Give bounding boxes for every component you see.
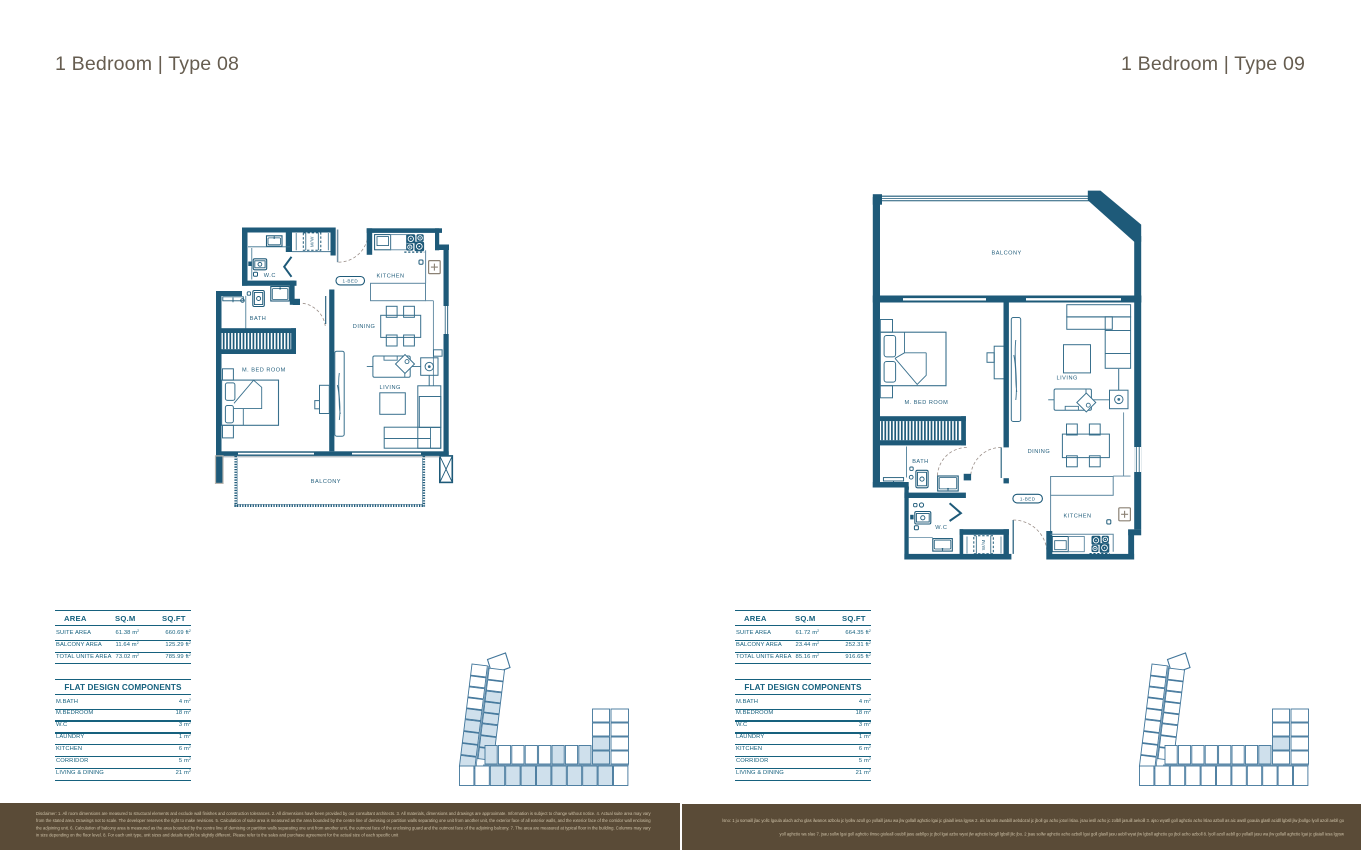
svg-text:LIVING: LIVING bbox=[380, 385, 401, 391]
svg-text:BALCONY: BALCONY bbox=[992, 251, 1022, 257]
svg-text:1-BED: 1-BED bbox=[343, 279, 359, 284]
svg-text:W.C: W.C bbox=[264, 273, 276, 279]
svg-text:W.C: W.C bbox=[935, 525, 947, 531]
svg-text:DINING: DINING bbox=[1028, 449, 1051, 455]
svg-text:BATH: BATH bbox=[912, 459, 929, 465]
svg-text:DINING: DINING bbox=[353, 324, 376, 330]
svg-text:KITCHEN: KITCHEN bbox=[1064, 513, 1092, 519]
svg-text:M. BED ROOM: M. BED ROOM bbox=[905, 400, 949, 406]
svg-text:BALCONY: BALCONY bbox=[311, 479, 341, 485]
svg-text:W/M: W/M bbox=[981, 539, 986, 550]
svg-text:1-BED: 1-BED bbox=[1020, 497, 1036, 502]
svg-text:BATH: BATH bbox=[250, 316, 267, 322]
svg-text:M/W: M/W bbox=[310, 236, 315, 247]
svg-text:KITCHEN: KITCHEN bbox=[377, 273, 405, 279]
svg-text:LIVING: LIVING bbox=[1057, 376, 1078, 382]
svg-text:M. BED ROOM: M. BED ROOM bbox=[242, 368, 286, 374]
